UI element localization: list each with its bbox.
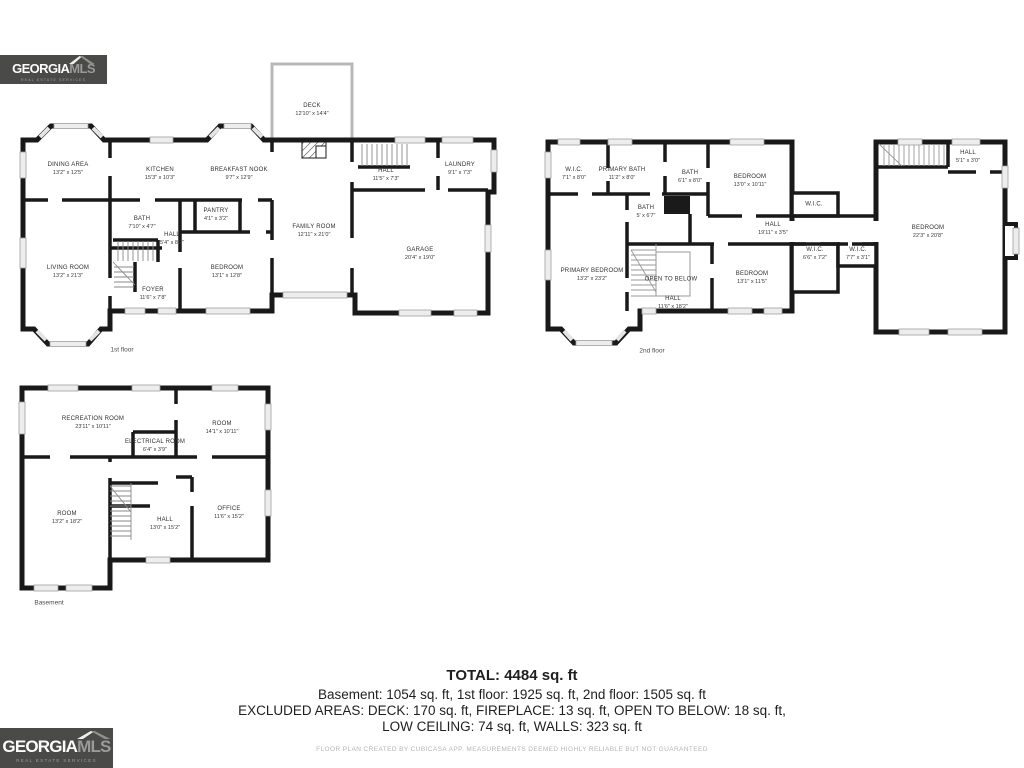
basement-caption: Basement: [34, 600, 63, 607]
second-floor-walls: [545, 139, 1019, 346]
first-floor-caption: 1st floor: [110, 347, 133, 354]
basement-walls: [19, 385, 271, 591]
chimney-icon: [664, 196, 690, 214]
excluded-areas-text-2: LOW CEILING: 74 sq. ft, WALLS: 323 sq. f…: [0, 719, 1024, 735]
floor-plan-drawings: [0, 0, 1024, 768]
first-floor-walls: [20, 64, 497, 347]
roof-icon: [77, 731, 110, 739]
second-floor-caption: 2nd floor: [639, 348, 664, 355]
logo-georgia-text: GEORGIA: [12, 62, 69, 75]
floor-plan-sheet: DINING AREA13'2" x 12'5"KITCHEN15'3" x 1…: [0, 0, 1024, 768]
logo-tagline: REAL ESTATE SERVICES: [21, 78, 86, 82]
area-summary: TOTAL: 4484 sq. ft Basement: 1054 sq. ft…: [0, 667, 1024, 753]
logo-georgia-text: GEORGIA: [2, 738, 77, 755]
excluded-areas-text: EXCLUDED AREAS: DECK: 170 sq. ft, FIREPL…: [0, 703, 1024, 719]
total-area-text: TOTAL: 4484 sq. ft: [0, 667, 1024, 684]
georgiamls-wordmark: GEORGIA MLS: [2, 738, 110, 756]
georgiamls-logo-top: GEORGIA MLS REAL ESTATE SERVICES: [0, 55, 107, 84]
logo-mls-text: MLS: [77, 737, 110, 756]
disclaimer-text: FLOOR PLAN CREATED BY CUBICASA APP. MEAS…: [0, 746, 1024, 753]
georgiamls-logo-bottom: GEORGIA MLS REAL ESTATE SERVICES: [0, 728, 113, 768]
georgiamls-wordmark: GEORGIA MLS: [12, 61, 95, 77]
roof-icon: [69, 56, 95, 64]
logo-tagline: REAL ESTATE SERVICES: [16, 758, 97, 763]
floor-areas-text: Basement: 1054 sq. ft, 1st floor: 1925 s…: [0, 687, 1024, 703]
